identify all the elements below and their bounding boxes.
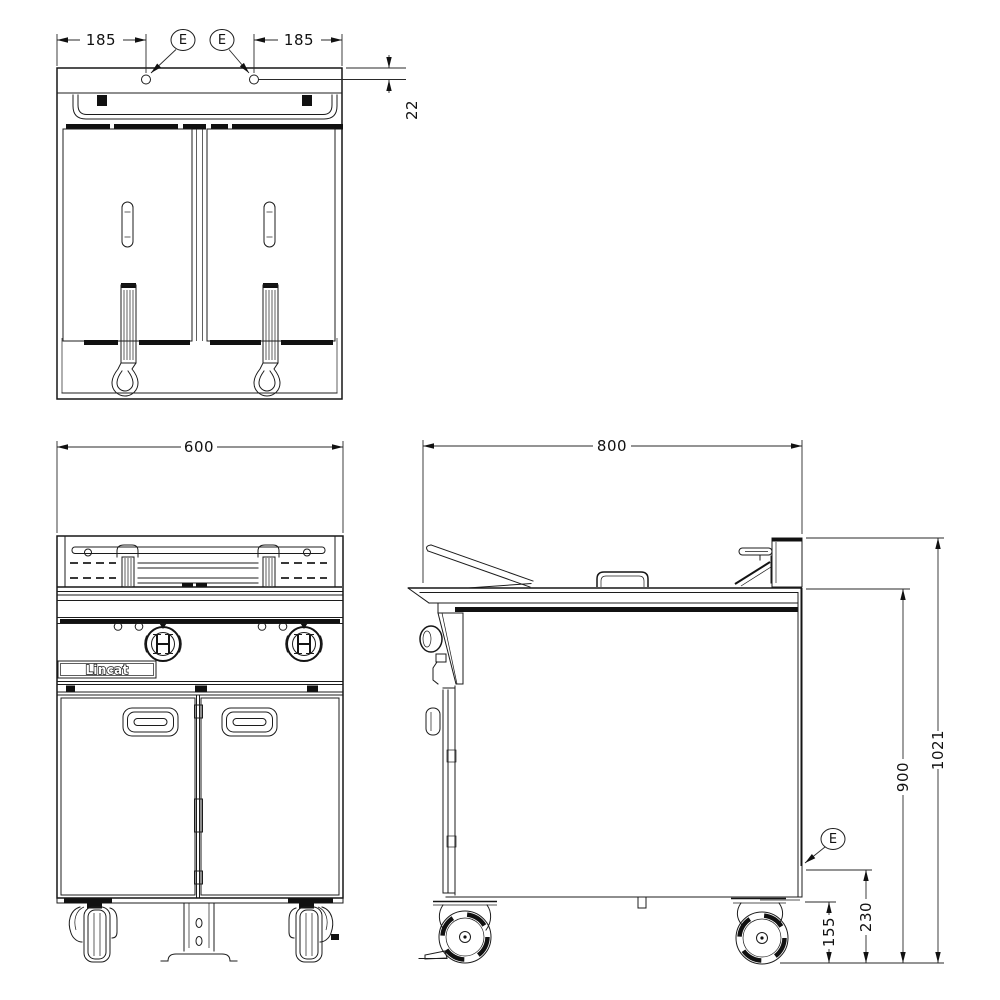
callout-e-side-label: E: [829, 832, 837, 847]
dim-label-22: 22: [403, 100, 421, 120]
callout-e-left-label: E: [179, 33, 187, 48]
callout-e-right-label: E: [218, 33, 226, 48]
brand-logo-text: Lincat: [85, 663, 128, 677]
dim-label-155: 155: [820, 917, 838, 947]
dim-label-1021: 1021: [929, 730, 947, 770]
paper-background: [0, 0, 1000, 1000]
dim-label-900: 900: [894, 762, 912, 792]
dim-label-600: 600: [184, 438, 214, 456]
dim-label-185-left: 185: [86, 31, 116, 49]
drawing-canvas: 185 185 22 E E: [0, 0, 1000, 1000]
dim-label-185-right: 185: [284, 31, 314, 49]
dim-label-800: 800: [597, 437, 627, 455]
dim-label-230: 230: [857, 902, 875, 932]
